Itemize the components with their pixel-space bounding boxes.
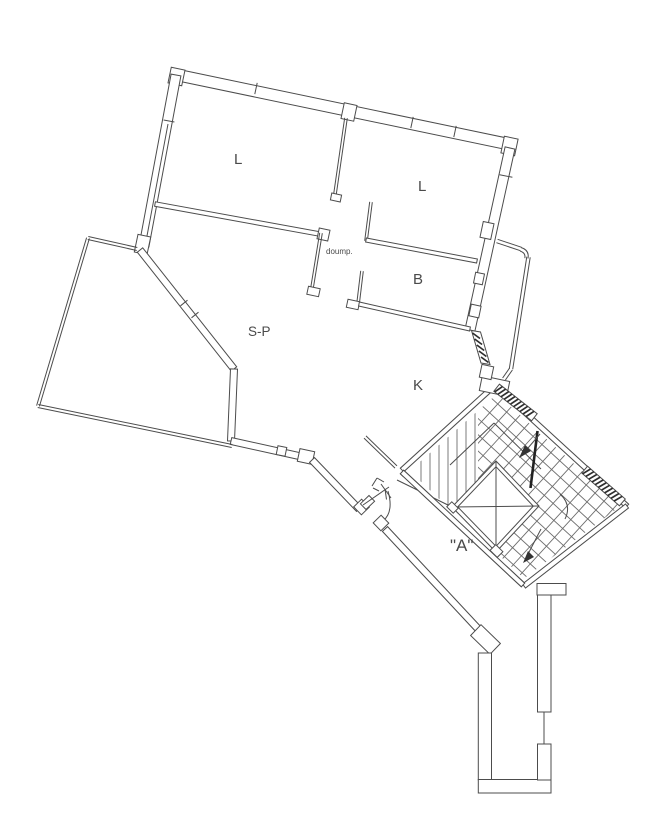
- svg-text:L: L: [418, 178, 426, 195]
- svg-text:K: K: [413, 377, 423, 394]
- svg-text:"A": "A": [450, 536, 473, 555]
- svg-text:doump.: doump.: [326, 247, 353, 256]
- svg-text:L: L: [234, 151, 242, 168]
- svg-text:B: B: [413, 271, 423, 288]
- svg-text:S-P: S-P: [248, 324, 271, 339]
